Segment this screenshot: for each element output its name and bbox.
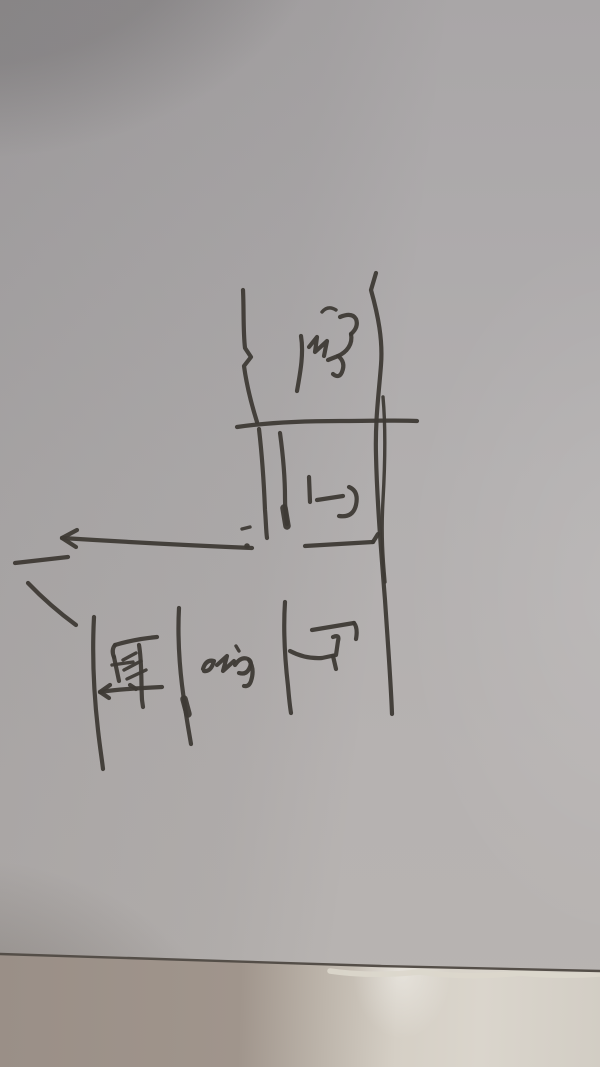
ink-stroke <box>340 315 357 334</box>
ink-stroke <box>309 477 310 502</box>
misc-strokes <box>15 557 76 625</box>
ink-stroke <box>123 653 136 660</box>
ink-stroke <box>309 337 327 356</box>
paper-edge-line <box>0 954 600 971</box>
ink-stroke <box>373 534 378 542</box>
ink-stroke-arrow-shaft <box>62 538 252 548</box>
ink-stroke <box>333 656 336 669</box>
ink-stroke <box>322 308 336 312</box>
ink-stroke-partition-blob <box>184 699 188 714</box>
ink-stroke <box>312 623 354 630</box>
ink-stroke-top-horizontal-wall <box>237 421 417 427</box>
ink-stroke <box>114 657 119 681</box>
ink-stroke <box>115 637 157 645</box>
ink-stroke-right-wall <box>371 273 392 714</box>
dimension-arrow-line <box>62 530 252 548</box>
ink-stroke-curve <box>28 583 76 625</box>
label-balcony-handwriting: 阳 <box>297 308 357 391</box>
ink-stroke-partition-wall <box>178 608 191 744</box>
label-bathroom-handwriting: 卫 <box>305 477 378 546</box>
lower-wall-lines <box>93 602 291 769</box>
floor-plan-sketch: 阳 卫 <box>0 0 600 1067</box>
ink-stroke-right-wall-double <box>382 397 385 582</box>
label-room-handwriting: 室 <box>203 646 253 686</box>
ink-stroke <box>290 636 338 658</box>
ink-stroke-short-line <box>15 557 68 563</box>
ink-stroke <box>339 487 357 516</box>
door-jamb-lines <box>259 429 287 538</box>
ink-stroke <box>139 645 143 707</box>
ink-stroke-jamb-blob <box>284 508 287 526</box>
photo-of-sketch: 阳 卫 <box>0 0 600 1067</box>
ink-stroke <box>354 623 357 639</box>
ink-dash <box>242 527 250 529</box>
paper-torn-edge-highlight <box>330 971 600 976</box>
ink-stroke <box>317 496 343 500</box>
ink-stroke <box>305 542 373 546</box>
ink-stroke <box>203 661 214 671</box>
ink-stroke <box>217 656 234 671</box>
ink-stroke-hall-wall <box>284 602 291 713</box>
ink-stroke-left-wall <box>243 290 257 422</box>
paper-edge <box>0 954 600 976</box>
label-kitchen-handwriting: 厨 <box>112 637 157 707</box>
ink-stroke-jamb-1 <box>259 429 267 538</box>
label-hall-handwriting: 厅 <box>290 623 357 669</box>
ink-stroke <box>297 336 302 391</box>
ink-stroke <box>236 646 239 651</box>
